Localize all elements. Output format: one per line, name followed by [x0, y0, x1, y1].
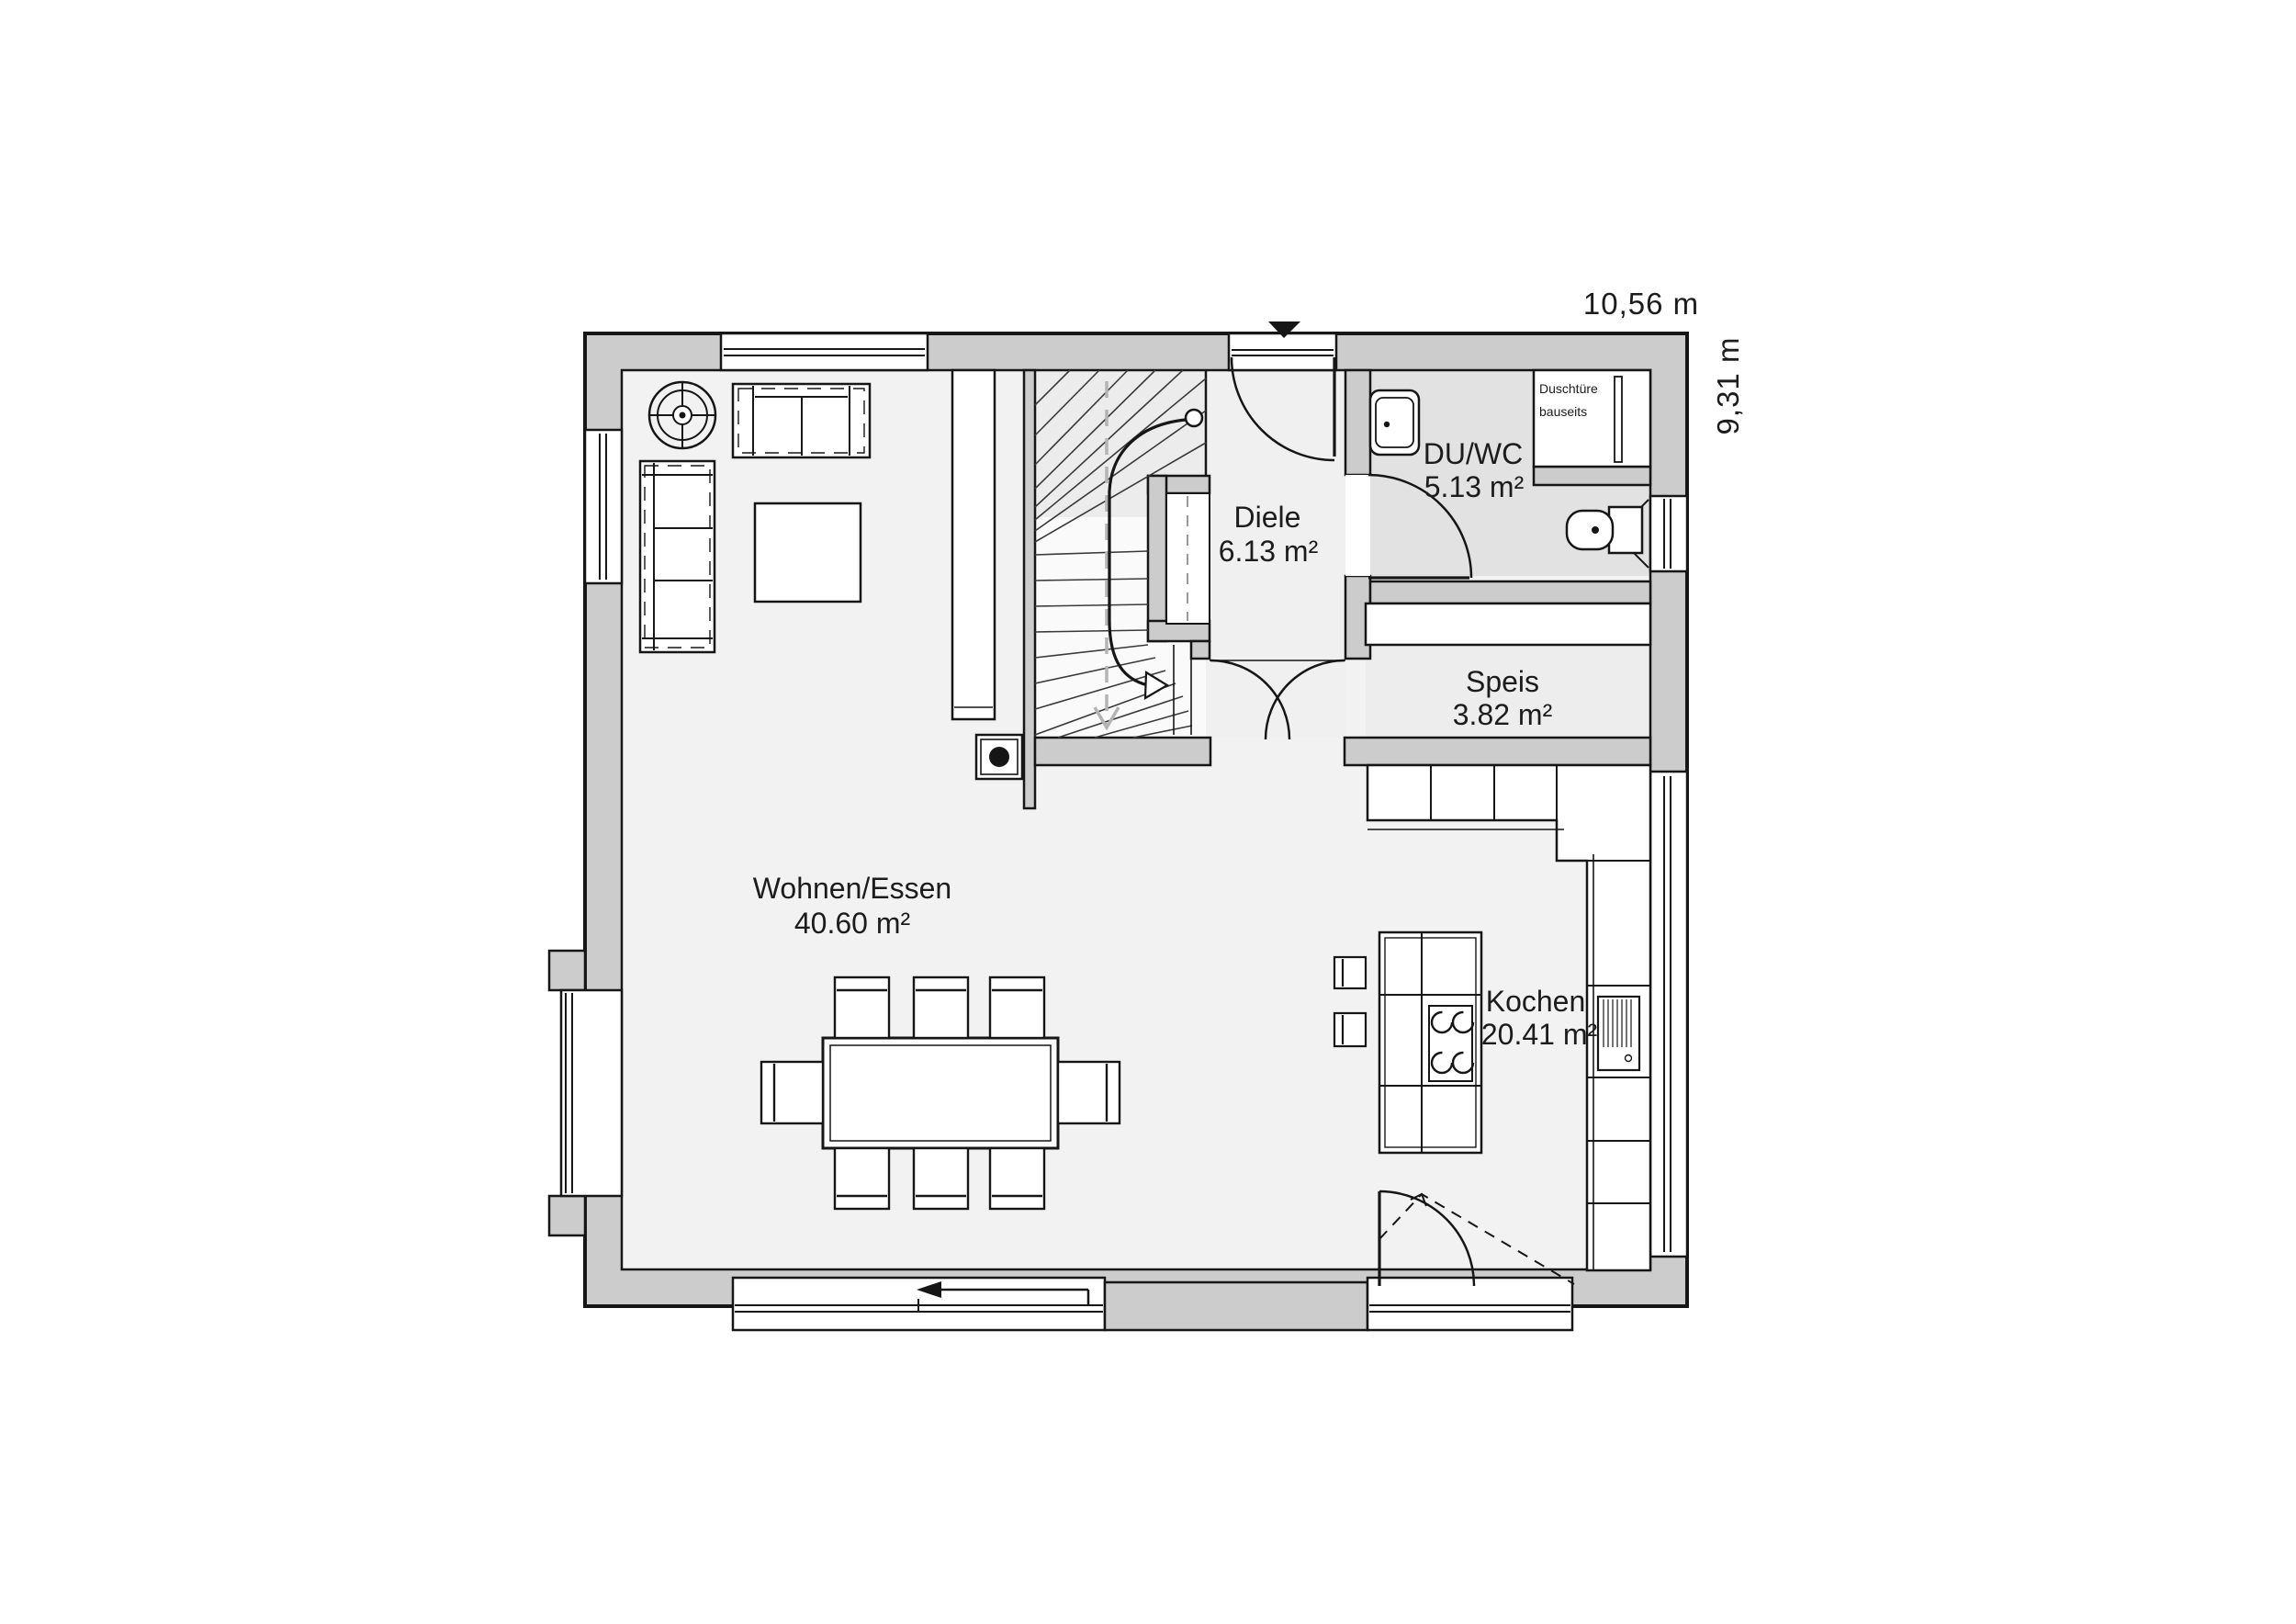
room-label-hall: Diele — [1234, 501, 1301, 534]
wall-hall-bath-upper — [1345, 370, 1370, 475]
chimney — [976, 735, 1022, 779]
wall-niche-left — [1148, 476, 1166, 641]
sofa-two-seat — [733, 384, 870, 457]
dimension-depth: 9,31 m — [1711, 337, 1745, 435]
room-label-pantry: Speis — [1466, 665, 1539, 698]
kitchen-island — [1379, 932, 1481, 1153]
tall-cabinet — [952, 370, 995, 719]
floor-plan-drawing: Wohnen/Essen 40.60 m² Diele 6.13 m² DU/W… — [0, 0, 2296, 1624]
shower-note-line2: bauseits — [1539, 404, 1587, 419]
pantry-shelf — [1366, 603, 1650, 645]
hall-niche — [1166, 493, 1210, 624]
window-left-lower — [549, 951, 622, 1235]
room-label-living: Wohnen/Essen — [753, 872, 951, 905]
sofa-three-seat — [640, 461, 715, 652]
dimension-width: 10,56 m — [1583, 287, 1699, 321]
wall-niche-foot — [1191, 641, 1210, 659]
room-area-hall: 6.13 m² — [1219, 535, 1319, 568]
shower-note-line1: Duschtüre — [1539, 381, 1598, 396]
cooktop — [1429, 1006, 1473, 1081]
wood-stove — [649, 382, 715, 448]
room-label-shower-wc: DU/WC — [1424, 437, 1523, 470]
wall-pantry-bottom — [1345, 738, 1650, 765]
room-area-pantry: 3.82 m² — [1453, 698, 1553, 731]
room-area-kitchen: 20.41 m² — [1481, 1018, 1598, 1051]
entrance-recess — [1229, 333, 1336, 370]
toilet — [1567, 507, 1642, 553]
room-label-kitchen: Kochen — [1486, 985, 1586, 1018]
wall-shower-half — [1534, 467, 1650, 485]
window-kitchen — [1650, 772, 1687, 1257]
wall-stair-bottom — [1035, 738, 1210, 765]
dining-table — [823, 1038, 1058, 1148]
wall-block-bottom — [1105, 1282, 1367, 1330]
window-left-upper — [585, 430, 622, 583]
kitchen-appliance — [1598, 997, 1639, 1070]
room-area-living: 40.60 m² — [794, 907, 911, 940]
floor-plan-page: Wohnen/Essen 40.60 m² Diele 6.13 m² DU/W… — [0, 0, 2296, 1624]
sliding-door-bay — [733, 1278, 1105, 1330]
room-area-shower-wc: 5.13 m² — [1424, 470, 1525, 503]
wall-bath-bottom — [1370, 581, 1650, 603]
washbasin — [1370, 390, 1419, 455]
coffee-table — [755, 503, 861, 602]
wall-fin-stair — [1024, 370, 1035, 808]
kitchen-door-bay — [1367, 1278, 1572, 1330]
window-top-living — [721, 333, 928, 370]
